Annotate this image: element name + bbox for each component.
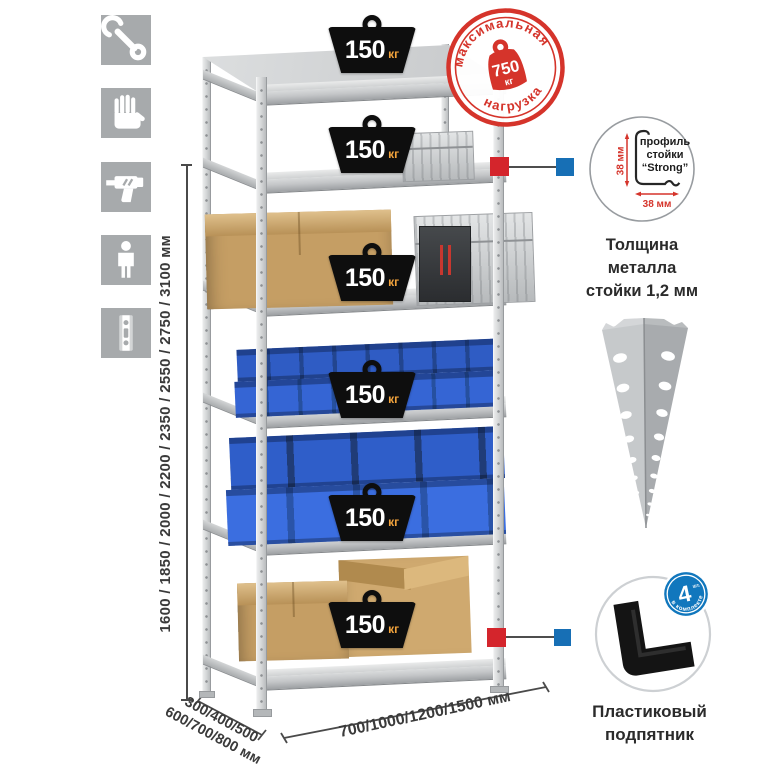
load-unit: кг [388, 147, 399, 161]
post-profile-detail: 38 мм 38 мм профиль стойки “Strong” [588, 115, 696, 223]
callout-line [509, 166, 556, 168]
load-value: 150 [345, 381, 385, 410]
shelf-load-badge: 150кг [328, 602, 416, 648]
profile-label: “Strong” [642, 162, 688, 174]
profile-dim-horizontal: 38 мм [643, 199, 672, 210]
load-unit: кг [388, 392, 399, 406]
drill-icon [101, 162, 151, 212]
rack-foot-plate [199, 691, 215, 698]
shelf-load-badge: 150кг [328, 127, 416, 173]
profile-caption-line2: стойки 1,2 мм [572, 280, 712, 303]
load-value: 150 [345, 36, 385, 65]
case-stripe [440, 245, 443, 275]
height-dimension-line [186, 165, 188, 700]
load-value: 150 [345, 136, 385, 165]
rack-foot-plate [253, 709, 272, 717]
rack-post-rear-left [202, 57, 211, 695]
angle-post-image [596, 310, 696, 538]
max-load-stamp: максимальная нагрузка 750 кг [430, 0, 582, 143]
load-unit: кг [388, 47, 399, 61]
rack-foot-plate [490, 686, 509, 693]
callout-line [506, 636, 554, 638]
shelf-load-badge: 150кг [328, 372, 416, 418]
kit-count-badge: 4 шт. в комплекте [656, 564, 715, 623]
gloves-icon [101, 88, 151, 138]
person-icon [101, 235, 151, 285]
load-unit: кг [388, 515, 399, 529]
rack-side-rail [203, 158, 259, 191]
height-dimension-tick-top [181, 164, 192, 166]
box-flap [403, 556, 469, 590]
dark-case [419, 226, 471, 302]
foot-caption: Пластиковый подпятник [577, 700, 722, 747]
profile-dim-vertical: 38 мм [616, 147, 627, 176]
profile-caption: Толщина металла стойки 1,2 мм [572, 234, 712, 302]
height-dimension-label: 1600 / 1850 / 2000 / 2200 / 2350 / 2550 … [157, 235, 174, 633]
wrench-icon [101, 15, 151, 65]
height-dimension: 1600 / 1850 / 2000 / 2200 / 2350 / 2550 … [150, 168, 180, 700]
rack-post-front-left [256, 77, 267, 714]
profile-caption-line1: Толщина металла [572, 234, 712, 280]
shelf-load-badge: 150кг [328, 255, 416, 301]
load-unit: кг [388, 622, 399, 636]
callout-marker-blue [554, 629, 571, 646]
load-value: 150 [345, 504, 385, 533]
post-profile-icon [101, 308, 151, 358]
load-value: 150 [345, 611, 385, 640]
load-value: 150 [345, 264, 385, 293]
load-unit: кг [388, 275, 399, 289]
shelf-load-badge: 150кг [328, 27, 416, 73]
callout-marker-blue [556, 158, 574, 176]
rack-post-front-right [493, 60, 504, 690]
box-flap [338, 558, 411, 592]
callout-marker-red [490, 157, 509, 176]
shelf-load-badge: 150кг [328, 495, 416, 541]
product-infographic: { "stamp": { "arc_top": "максимальная", … [0, 0, 765, 765]
callout-marker-red [487, 628, 506, 647]
foot-caption-line2: подпятник [577, 723, 722, 746]
case-stripe [448, 245, 451, 275]
foot-caption-line1: Пластиковый [577, 700, 722, 723]
profile-label: профиль [640, 136, 690, 148]
profile-label: стойки [646, 149, 683, 161]
